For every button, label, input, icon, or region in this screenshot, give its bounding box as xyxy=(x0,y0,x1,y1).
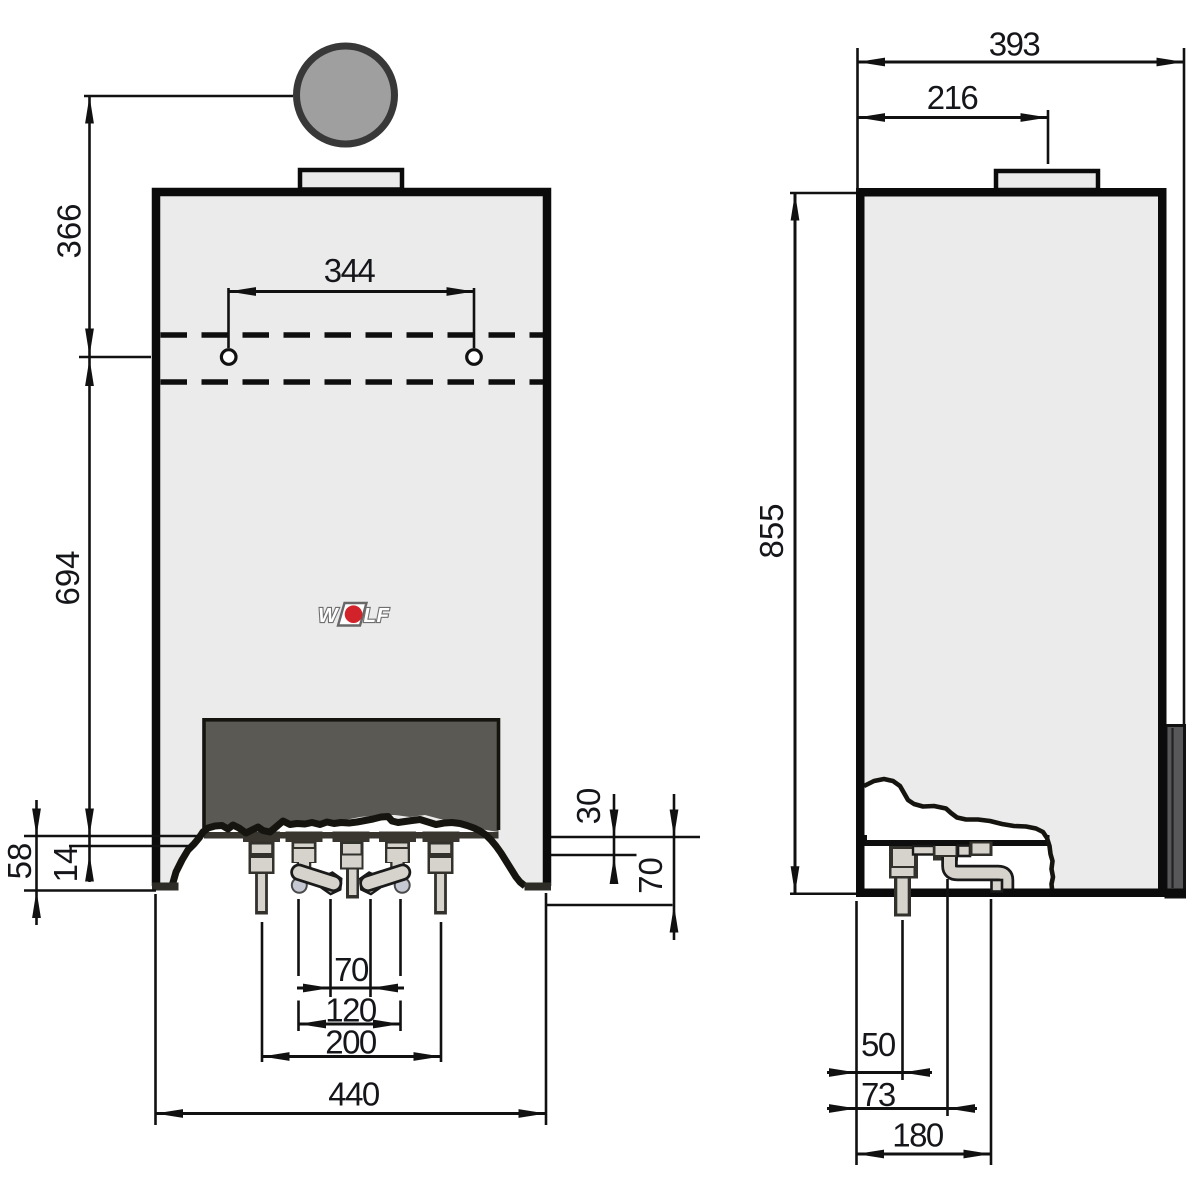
svg-text:344: 344 xyxy=(324,252,376,289)
svg-text:W: W xyxy=(318,604,339,627)
svg-text:393: 393 xyxy=(989,26,1040,63)
svg-text:50: 50 xyxy=(861,1026,896,1063)
svg-text:180: 180 xyxy=(892,1117,944,1154)
svg-text:73: 73 xyxy=(861,1076,895,1113)
svg-text:216: 216 xyxy=(927,79,978,116)
svg-text:LF: LF xyxy=(363,604,389,627)
svg-text:14: 14 xyxy=(47,846,84,883)
svg-text:58: 58 xyxy=(1,843,38,880)
svg-text:694: 694 xyxy=(49,550,86,605)
svg-text:70: 70 xyxy=(632,857,669,894)
svg-text:440: 440 xyxy=(328,1076,380,1113)
svg-text:70: 70 xyxy=(334,951,369,988)
svg-text:855: 855 xyxy=(753,503,790,558)
svg-text:200: 200 xyxy=(325,1024,377,1061)
svg-text:30: 30 xyxy=(570,788,607,825)
svg-text:366: 366 xyxy=(51,203,88,258)
